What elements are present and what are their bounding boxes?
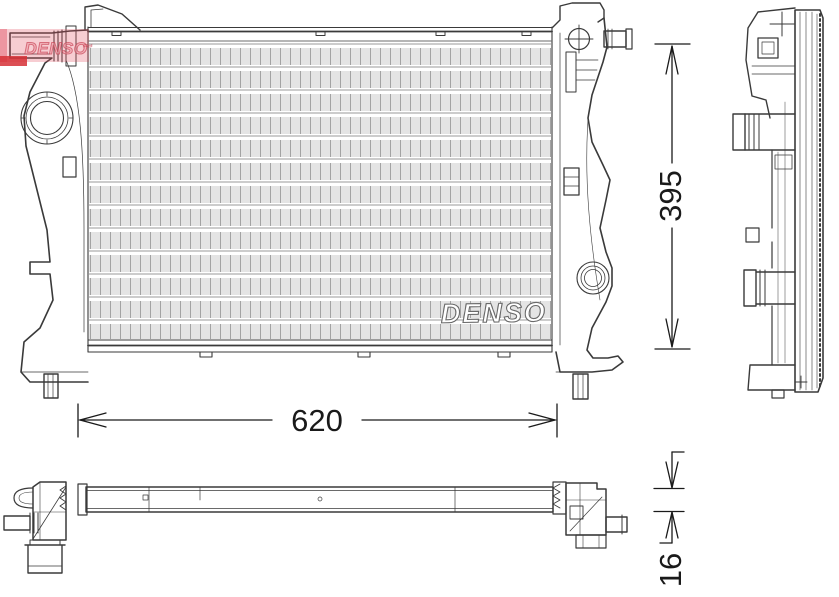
top-left-bracket xyxy=(85,5,140,30)
crosshair-icon xyxy=(565,25,593,53)
left-clip xyxy=(63,157,76,177)
bottom-outlet-pipe xyxy=(606,517,627,532)
drain-plug-circle xyxy=(577,262,609,294)
bottom-left-tank xyxy=(4,482,66,573)
core-brand-logo: DENSO xyxy=(441,297,548,329)
dimension-thickness: 16 xyxy=(653,452,688,587)
core-fin-matrix xyxy=(89,42,551,339)
dimension-height-label: 395 xyxy=(653,170,688,222)
side-view xyxy=(733,8,823,398)
watermark-text: DENSO xyxy=(25,39,88,58)
denso-watermark: DENSO ~ xyxy=(0,29,92,66)
watermark-swoosh: ~ xyxy=(83,38,92,55)
side-pipe-bottom xyxy=(744,270,795,306)
dimension-width-label: 620 xyxy=(291,403,343,438)
dimension-thickness-label: 16 xyxy=(653,553,688,587)
right-clip xyxy=(564,168,579,195)
dimension-height: 395 xyxy=(653,44,690,349)
watermark-red-block xyxy=(0,56,27,66)
crosshair-icon xyxy=(770,12,794,36)
left-mount-peg xyxy=(44,374,58,398)
radiator-technical-drawing: 395 620 16 DENSO DENSO ~ xyxy=(0,0,839,597)
dimension-width: 620 xyxy=(78,403,557,438)
bottom-inlet-pipe xyxy=(4,516,30,530)
filler-neck-circle xyxy=(21,92,73,144)
front-view xyxy=(10,3,632,399)
right-tank xyxy=(552,3,632,399)
bottom-view xyxy=(4,482,627,573)
bottom-right-tank xyxy=(553,482,627,548)
side-pipe-top xyxy=(733,114,795,150)
radiator-technical-drawing-page: 395 620 16 DENSO DENSO ~ xyxy=(0,0,839,597)
top-right-bracket xyxy=(552,3,604,28)
right-mount-peg xyxy=(573,374,588,399)
